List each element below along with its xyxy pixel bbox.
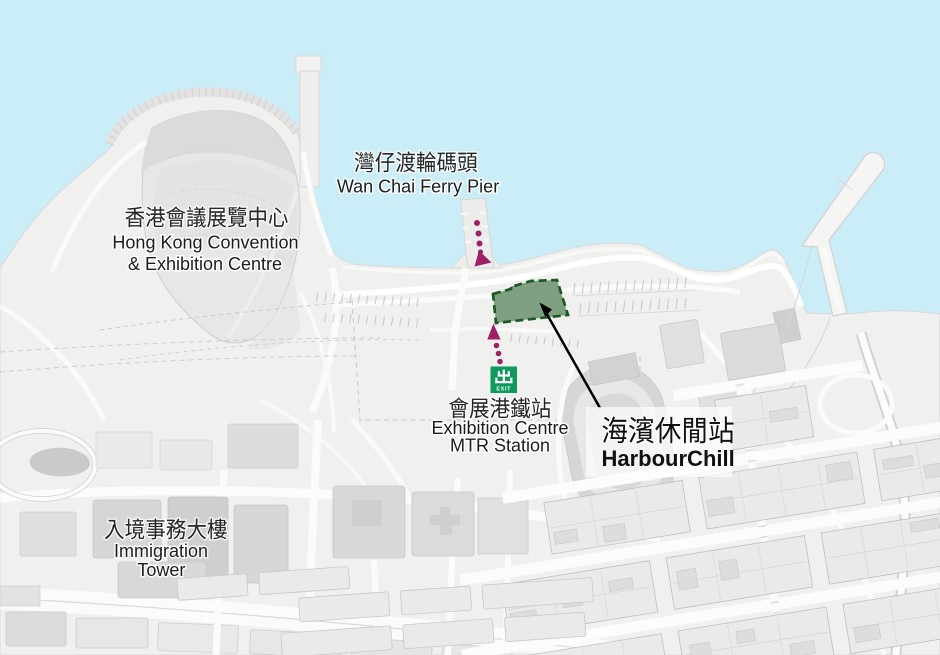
- svg-text:Hong Kong Convention: Hong Kong Convention: [112, 233, 298, 253]
- svg-text:MTR Station: MTR Station: [450, 436, 550, 456]
- svg-text:Immigration: Immigration: [114, 541, 208, 561]
- svg-text:& Exhibition Centre: & Exhibition Centre: [128, 254, 282, 274]
- svg-text:Tower: Tower: [137, 560, 185, 580]
- svg-text:HarbourChill: HarbourChill: [602, 446, 735, 471]
- svg-text:EXIT: EXIT: [496, 387, 511, 393]
- svg-text:Wan Chai Ferry Pier: Wan Chai Ferry Pier: [337, 177, 499, 197]
